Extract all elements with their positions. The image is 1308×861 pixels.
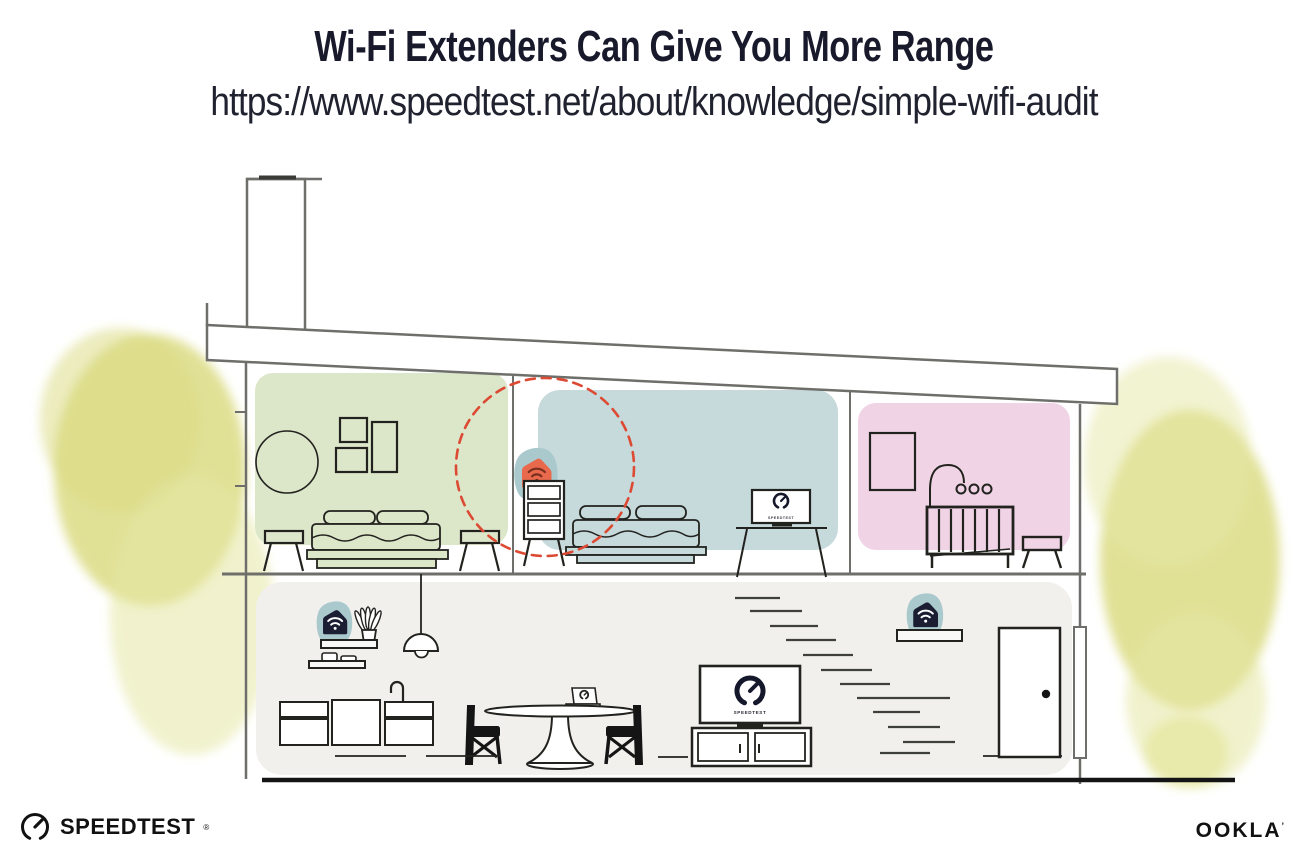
front-door — [999, 628, 1060, 757]
ookla-wordmark: OOKLA — [1196, 819, 1282, 842]
stool — [1023, 537, 1061, 568]
stool — [460, 531, 499, 571]
infographic-canvas: Wi-Fi Extenders Can Give You More Range … — [0, 0, 1308, 861]
speedtest-wordmark: SPEEDTEST — [60, 814, 195, 840]
door-knob — [1042, 690, 1050, 698]
right-wall-column — [1074, 627, 1086, 758]
bed — [566, 506, 706, 563]
foliage-left — [40, 328, 274, 755]
foliage-right — [1084, 357, 1280, 788]
speedtest-logo: SPEEDTEST® — [18, 809, 209, 845]
media-console — [692, 728, 811, 766]
dresser — [524, 481, 564, 566]
speedtest-reg-mark: ® — [203, 823, 209, 832]
ookla-logo: OOKLA’ — [1196, 819, 1286, 843]
chimney — [246, 178, 322, 338]
living-tv: SPEEDTEST — [700, 666, 800, 727]
wifi-router — [317, 601, 353, 645]
entry-shelf — [897, 630, 962, 641]
wall-shelf-lower — [309, 661, 365, 668]
picture-frame — [870, 433, 915, 490]
bed — [307, 511, 448, 568]
house-cross-section-illustration: SPEEDTEST — [0, 0, 1308, 861]
tv-screen-label: SPEEDTEST — [734, 710, 767, 715]
footer: SPEEDTEST® OOKLA’ — [0, 803, 1308, 849]
stool — [264, 531, 303, 571]
wall-shelf-upper — [321, 640, 377, 648]
tv-screen-label: SPEEDTEST — [768, 516, 794, 520]
speedtest-gauge-icon — [18, 809, 52, 845]
ookla-mark: ’ — [1281, 821, 1286, 831]
